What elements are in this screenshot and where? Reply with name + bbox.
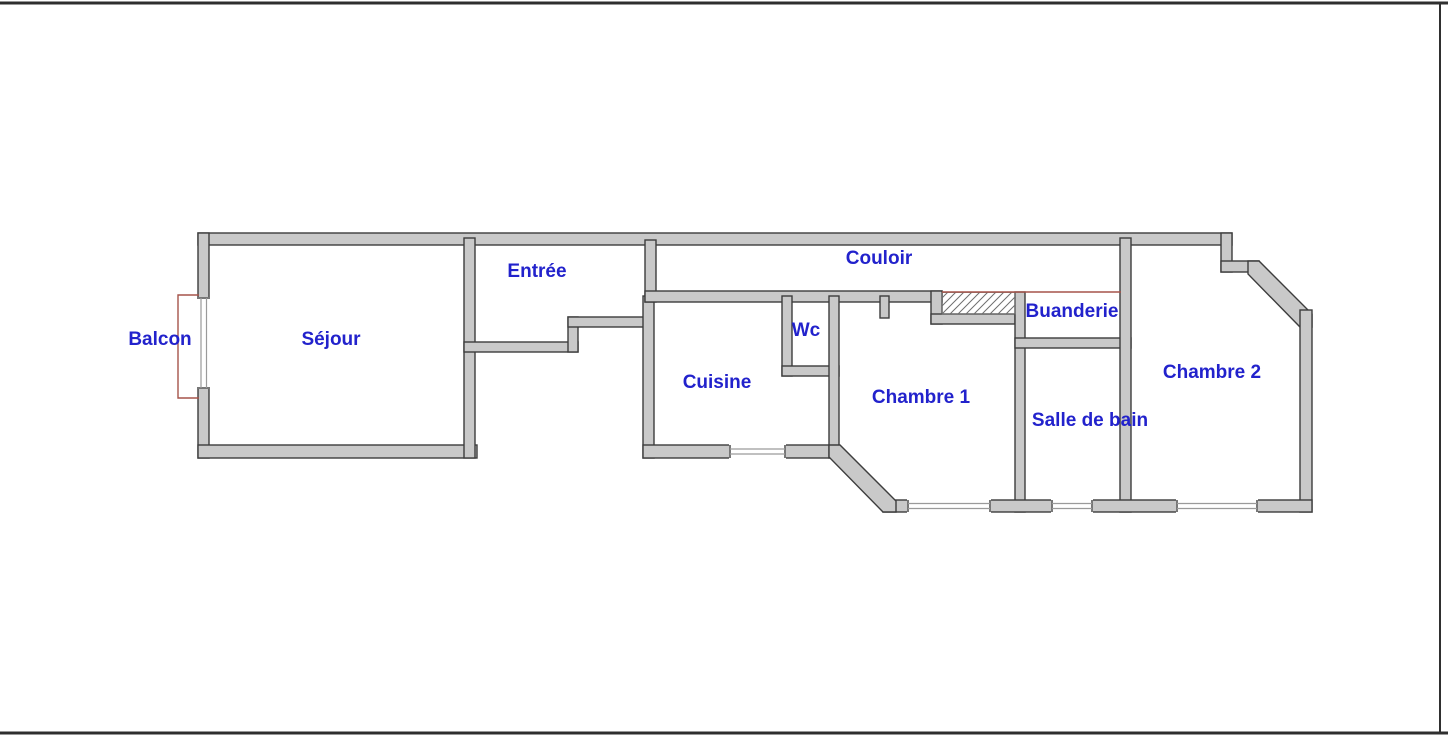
- wall-chambre1-left: [829, 296, 839, 458]
- wall-sejour-bottom: [198, 445, 477, 458]
- wall-top-outer: [198, 233, 1232, 245]
- balcony-door-opening: [195, 297, 212, 389]
- sdb-window-opening: [1051, 499, 1093, 514]
- room-label-cuisine: Cuisine: [683, 372, 752, 393]
- wall-buanderie-bottom: [1015, 338, 1131, 348]
- wall-hatch-bottom: [931, 314, 1015, 324]
- room-label-sejour: Séjour: [301, 329, 361, 350]
- room-label-salle-de-bain: Salle de bain: [1032, 410, 1148, 431]
- cuisine-window-opening: [729, 444, 786, 460]
- room-label-buanderie: Buanderie: [1026, 301, 1119, 322]
- wall-right-outer: [1300, 310, 1312, 512]
- floor-plan-page: Balcon Séjour Entrée Couloir Cuisine Wc …: [0, 0, 1448, 738]
- chambre1-window-opening: [907, 499, 991, 514]
- wall-cuisine-left: [643, 296, 654, 458]
- wall-wc-left: [782, 296, 792, 376]
- room-label-chambre2: Chambre 2: [1163, 362, 1261, 383]
- room-label-balcon: Balcon: [128, 329, 191, 350]
- chambre2-window-opening: [1176, 499, 1258, 514]
- room-label-entree: Entrée: [507, 261, 566, 282]
- wall-chambre2-left: [1120, 238, 1131, 512]
- floor-plan-drawing: Balcon Séjour Entrée Couloir Cuisine Wc …: [0, 0, 1448, 738]
- room-label-couloir: Couloir: [846, 248, 913, 269]
- wall-chambre1-door-stub: [880, 296, 889, 318]
- wall-sejour-left-upper: [198, 233, 209, 298]
- wall-chambre1-sdb-divider: [1015, 292, 1025, 512]
- wall-passage-top: [568, 317, 648, 327]
- wall-couloir-bottom: [645, 291, 942, 302]
- wall-chambre1-diagonal: [829, 445, 896, 512]
- hatched-wall-section: [942, 293, 1015, 315]
- room-label-chambre1: Chambre 1: [872, 387, 971, 408]
- room-label-wc: Wc: [792, 320, 821, 341]
- wall-entree-bottom: [464, 342, 578, 352]
